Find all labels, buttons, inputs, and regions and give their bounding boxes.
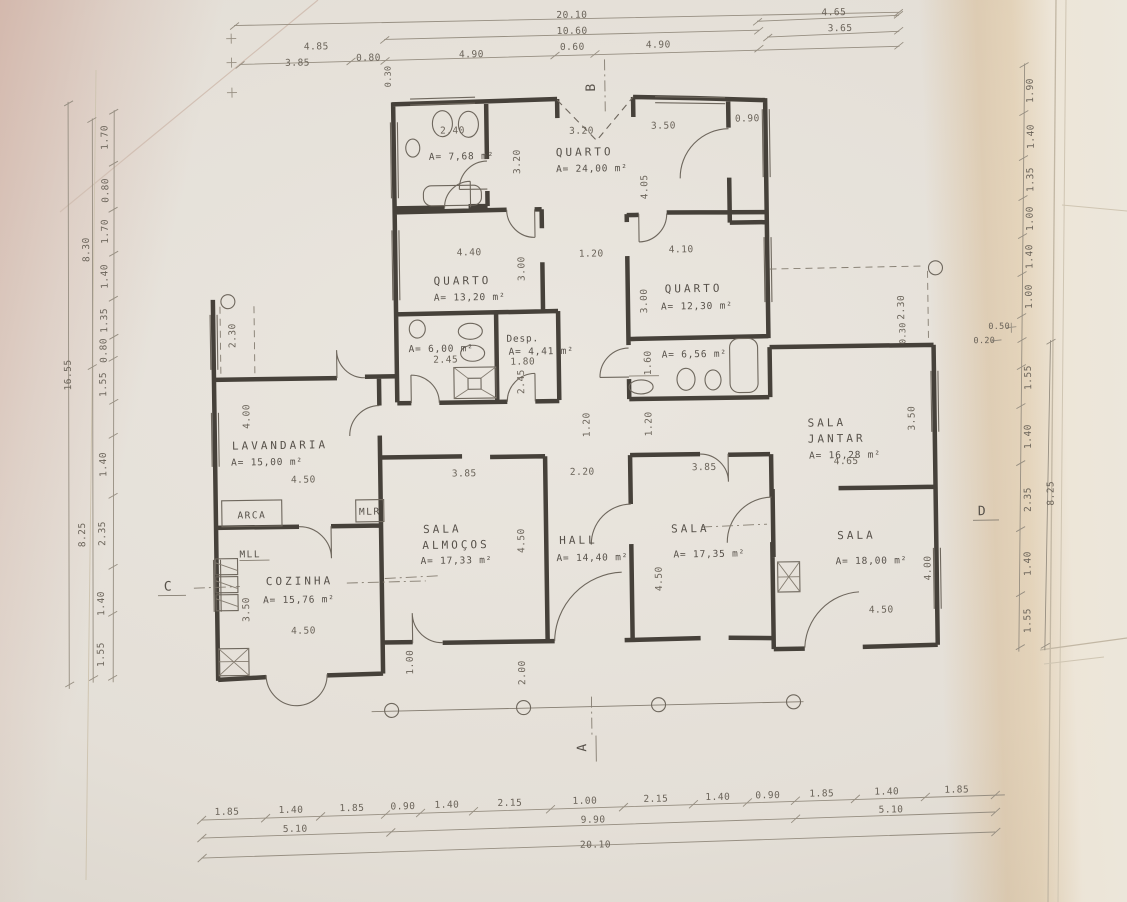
dim-right-7: 1.40 — [1023, 424, 1034, 449]
room-area-quarto-13: A= 13,20 m² — [434, 292, 506, 304]
dim-tr-door: 0.90 — [735, 113, 760, 124]
section-markers: B A C D — [157, 78, 989, 757]
dim-bath-top-w: 2.40 — [440, 125, 465, 136]
terrace-column — [928, 261, 942, 275]
section-marker-a: A — [575, 744, 590, 752]
dim-right-2: 1.35 — [1025, 167, 1036, 192]
room-name-quarto-12: QUARTO — [665, 282, 723, 296]
dimensions-right: 1.90 1.40 1.35 1.00 1.40 1.00 1.55 1.40 … — [970, 78, 1059, 634]
toilet-icon — [677, 368, 695, 390]
dim-top-060: 0.60 — [560, 42, 585, 53]
dim-left-mid1: 8.30 — [81, 237, 92, 262]
porch-column — [385, 703, 399, 717]
room-area-hall: A= 14,40 m² — [556, 552, 628, 564]
dim-left-9: 1.40 — [96, 591, 107, 616]
dim-bottom-510l: 5.10 — [283, 824, 308, 835]
room-name-quarto-13: QUARTO — [434, 274, 492, 288]
room-area-quarto-12: A= 12,30 m² — [661, 301, 733, 313]
dim-top-365: 3.65 — [828, 23, 853, 34]
dim-left-1: 0.80 — [100, 178, 111, 203]
dim-hall-w: 2.20 — [570, 467, 595, 478]
section-marker-d: D — [978, 504, 986, 519]
dim-sj-h: 3.50 — [906, 406, 917, 431]
toilet-icon — [409, 320, 425, 338]
dim-top-490a: 4.90 — [459, 49, 484, 60]
dim-left-10: 1.55 — [96, 642, 107, 667]
dim-desp-h: 2.45 — [516, 369, 527, 394]
room-name-desp: Desp. — [506, 333, 539, 344]
toilet-icon — [406, 139, 420, 157]
dim-bottom-7: 2.15 — [643, 794, 668, 805]
shower-drain-icon — [468, 378, 481, 389]
dim-bottom-9: 0.90 — [755, 790, 780, 801]
dim-top-total: 20.10 — [556, 10, 587, 21]
dim-bottom-0: 1.85 — [214, 807, 239, 818]
dim-coz-h: 3.50 — [241, 597, 252, 622]
porch-column — [516, 700, 530, 714]
bidet-icon — [705, 370, 721, 390]
dimensions-top: 20.10 10.60 4.85 3.85 0.80 4.90 0.60 4.9… — [284, 6, 853, 89]
terrace-column — [221, 295, 235, 309]
room-labels: A= 7,68 m² QUARTO A= 24,00 m² QUARTO A= … — [227, 141, 908, 606]
room-area-sala-almocos: A= 17,33 m² — [420, 555, 492, 567]
dim-q24-h: 3.20 — [512, 149, 523, 174]
dim-bottom-12: 1.85 — [944, 784, 969, 795]
dim-lav-w: 4.50 — [291, 474, 316, 485]
dim-top-465: 4.65 — [821, 7, 846, 18]
section-marker-b: B — [584, 83, 599, 91]
section-marker-c: C — [164, 579, 172, 594]
dim-q12-h: 3.00 — [639, 288, 650, 313]
dim-coz-w: 4.50 — [291, 625, 316, 636]
label-arca: ARCA — [237, 510, 266, 521]
dim-top-485: 4.85 — [304, 41, 329, 52]
dim-terrace-r-h: 2.30 — [896, 295, 907, 320]
dim-left-mid2: 8.25 — [77, 522, 88, 547]
dim-bottom-3: 0.90 — [390, 801, 415, 812]
dim-bath6-w: 2.45 — [433, 354, 458, 365]
dim-right-6: 1.55 — [1023, 365, 1034, 390]
dim-left-3: 1.40 — [99, 264, 110, 289]
dim-sa-w: 3.85 — [452, 468, 477, 479]
dim-cor-r-h: 1.20 — [643, 411, 654, 436]
dim-bath656-h: 1.60 — [643, 350, 654, 375]
room-name-lavandaria: LAVANDARIA — [232, 438, 328, 452]
dim-right-3: 1.00 — [1025, 206, 1036, 231]
room-area-bath-6: A= 6,00 m² — [408, 343, 473, 355]
dim-left-outer: 16.55 — [63, 359, 74, 390]
room-area-sala-17: A= 17,35 m² — [673, 548, 745, 560]
room-name-sala-jantar-1: SALA — [808, 416, 847, 430]
dim-corridor-w: 1.20 — [579, 248, 604, 259]
dim-bottom-8: 1.40 — [705, 792, 730, 803]
dim-sj-w: 4.65 — [834, 456, 859, 467]
dim-porch-h: 2.00 — [517, 660, 528, 685]
dim-right-1: 1.40 — [1025, 124, 1036, 149]
dim-terrace-l-h: 2.30 — [227, 323, 238, 348]
dim-right-4: 1.40 — [1024, 244, 1035, 269]
dim-tr-w: 3.50 — [651, 120, 676, 131]
dim-left-7: 1.40 — [98, 452, 109, 477]
room-area-sala-18: A= 18,00 m² — [835, 555, 907, 567]
dim-top-385: 3.85 — [285, 57, 310, 68]
dim-right-small1: 0.50 — [988, 322, 1010, 332]
dim-q13-w: 4.40 — [457, 247, 482, 258]
dim-left-2: 1.70 — [100, 219, 111, 244]
section-lines — [151, 54, 1003, 768]
dim-right-8: 2.35 — [1023, 487, 1034, 512]
dim-s18-h: 4.00 — [922, 555, 933, 580]
dim-bottom-990: 9.90 — [581, 814, 606, 825]
room-name-quarto-24: QUARTO — [556, 145, 614, 159]
room-area-lavandaria: A= 15,00 m² — [231, 457, 303, 469]
dim-sa-h: 4.50 — [516, 528, 527, 553]
room-name-sala-almocos-2: ALMOÇOS — [422, 538, 490, 552]
dim-hall-h: 4.50 — [654, 566, 665, 591]
dim-bottom-11: 1.40 — [874, 786, 899, 797]
dim-right-5: 1.00 — [1024, 284, 1035, 309]
sink-icon — [458, 323, 482, 339]
dim-bottom-2: 1.85 — [339, 803, 364, 814]
dim-top-490b: 4.90 — [646, 39, 671, 50]
dim-desp-w: 1.80 — [510, 356, 535, 367]
dim-left-4: 1.35 — [99, 308, 110, 333]
floor-plan-drawing: A= 7,68 m² QUARTO A= 24,00 m² QUARTO A= … — [0, 0, 1127, 902]
dim-bottom-10: 1.85 — [809, 788, 834, 799]
dim-bottom-4: 1.40 — [434, 799, 459, 810]
dim-right-small2: 0.20 — [973, 336, 995, 346]
room-name-sala-17: SALA — [671, 522, 710, 536]
dimension-lines — [56, 7, 1063, 864]
dim-q24-w: 3.20 — [569, 126, 594, 137]
scanned-floor-plan-page: A= 7,68 m² QUARTO A= 24,00 m² QUARTO A= … — [0, 0, 1127, 902]
dim-terrace-r-s: 0.30 — [898, 322, 908, 344]
walls — [210, 93, 938, 681]
dimensions-bottom: 1.85 1.40 1.85 0.90 1.40 2.15 1.00 2.15 … — [214, 784, 970, 856]
room-name-cozinha: COZINHA — [266, 574, 334, 588]
dim-right-9: 1.40 — [1022, 551, 1033, 576]
dim-s17-w: 3.85 — [692, 462, 717, 473]
dim-right-0: 1.90 — [1025, 78, 1036, 103]
room-area-quarto-24: A= 24,00 m² — [556, 163, 628, 175]
label-mll: MLL — [239, 549, 261, 560]
label-mlr: MLR — [359, 507, 381, 518]
room-name-sala-almocos-1: SALA — [423, 522, 462, 536]
dim-lav-h: 4.00 — [241, 404, 252, 429]
dim-top-sub: 10.60 — [557, 26, 588, 37]
room-name-sala-18: SALA — [837, 529, 876, 543]
dim-left-8: 2.35 — [97, 521, 108, 546]
dim-bottom-6: 1.00 — [572, 796, 597, 807]
dim-left-0: 1.70 — [99, 125, 110, 150]
dim-left-5: 0.80 — [98, 338, 109, 363]
dim-bottom-510r: 5.10 — [879, 804, 904, 815]
dim-bottom-1: 1.40 — [278, 805, 303, 816]
sink-icon — [629, 380, 653, 394]
dim-left-6: 1.55 — [98, 372, 109, 397]
dim-q12-w: 4.10 — [669, 244, 694, 255]
dim-top-080: 0.80 — [356, 53, 381, 64]
dim-q13-h: 3.00 — [516, 256, 527, 281]
dim-right-10: 1.55 — [1022, 608, 1033, 633]
dim-bottom-5: 2.15 — [497, 798, 522, 809]
room-name-hall: HALL — [559, 534, 598, 548]
dim-bottom-total: 20.10 — [580, 839, 611, 850]
bathtub-icon — [729, 338, 758, 392]
fixtures — [209, 106, 801, 676]
dim-porch-l-h: 1.00 — [405, 650, 416, 675]
room-name-sala-jantar-2: JANTAR — [808, 432, 866, 446]
dim-right-mid: 8.25 — [1045, 481, 1056, 506]
dim-top-030: 0.30 — [384, 65, 394, 87]
dim-cor-l-h: 1.20 — [581, 412, 592, 437]
dim-s18-w: 4.50 — [869, 604, 894, 615]
room-area-bath-top: A= 7,68 m² — [429, 151, 494, 163]
dim-tr-h: 4.05 — [639, 174, 650, 199]
room-area-bath-656: A= 6,56 m² — [662, 349, 727, 361]
room-area-cozinha: A= 15,76 m² — [263, 594, 335, 606]
